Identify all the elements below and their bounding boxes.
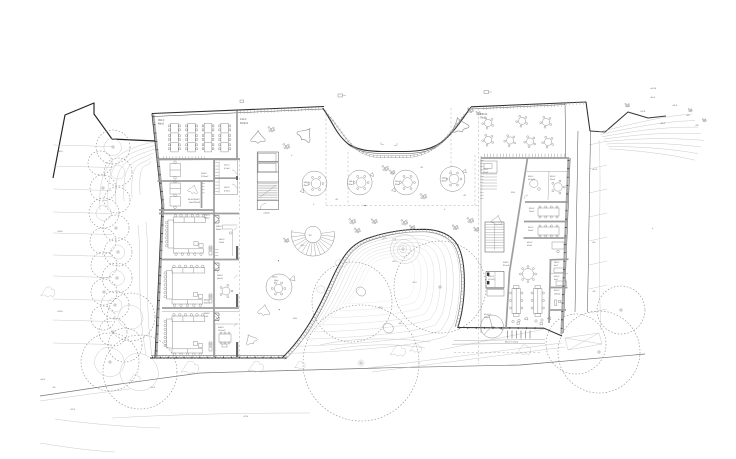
svg-text:48m2: 48m2 xyxy=(158,123,165,126)
svg-text:+29.5: +29.5 xyxy=(70,409,76,411)
svg-text:(16m2): (16m2) xyxy=(554,294,561,296)
svg-text:45m2: 45m2 xyxy=(527,245,533,247)
svg-text:144-C: 144-C xyxy=(395,181,401,183)
svg-text:+38.9: +38.9 xyxy=(660,123,666,125)
svg-text:16m2: 16m2 xyxy=(529,211,535,213)
svg-text:45m2: 45m2 xyxy=(395,184,401,186)
svg-text:50%: 50% xyxy=(511,192,515,194)
svg-text:45m2: 45m2 xyxy=(304,185,310,187)
svg-text:+34.5: +34.5 xyxy=(57,151,63,153)
svg-text:+31.0: +31.0 xyxy=(412,282,417,284)
svg-text:45m2: 45m2 xyxy=(550,179,556,181)
svg-text:(6m): (6m) xyxy=(274,280,279,282)
svg-text:+30.5: +30.5 xyxy=(378,307,383,309)
svg-text:024-C1: 024-C1 xyxy=(488,276,494,278)
svg-text:064-C: 064-C xyxy=(204,215,210,217)
svg-text:+33.5: +33.5 xyxy=(57,311,63,313)
svg-text:144-C: 144-C xyxy=(240,118,247,121)
svg-text:69m2: 69m2 xyxy=(216,229,222,231)
svg-text:(4.5m2): (4.5m2) xyxy=(488,279,495,281)
svg-text:+35: +35 xyxy=(463,195,466,197)
svg-text:034-C: 034-C xyxy=(554,262,560,264)
svg-text:144-C: 144-C xyxy=(442,178,448,180)
svg-text:+31.5: +31.5 xyxy=(392,261,397,263)
svg-text:(0m2/20m2): (0m2/20m2) xyxy=(189,202,201,204)
svg-text:(6m2): (6m2) xyxy=(217,278,223,280)
svg-text:6.5m2: 6.5m2 xyxy=(224,168,231,170)
svg-text:+29.0: +29.0 xyxy=(243,416,249,418)
svg-text:23.5m2: 23.5m2 xyxy=(201,176,209,178)
svg-text:60m2: 60m2 xyxy=(204,303,210,305)
svg-text:+35: +35 xyxy=(420,167,423,169)
svg-text:144-C: 144-C xyxy=(349,181,355,183)
svg-text:04-023(04C): 04-023(04C) xyxy=(188,199,200,201)
svg-text:16m2: 16m2 xyxy=(528,230,534,232)
svg-text:+30.5: +30.5 xyxy=(40,379,46,381)
svg-text:064-C: 064-C xyxy=(204,300,210,302)
svg-text:044-C: 044-C xyxy=(201,173,207,175)
svg-text:034-C: 034-C xyxy=(529,208,535,210)
svg-text:+04-05: +04-05 xyxy=(263,213,270,215)
svg-text:045-C1: 045-C1 xyxy=(480,114,488,116)
svg-text:90 m2: 90 m2 xyxy=(503,265,510,267)
svg-text:45m2: 45m2 xyxy=(349,184,355,186)
svg-text:044-C #i mknp: 044-C #i mknp xyxy=(505,342,519,344)
svg-text:034-C: 034-C xyxy=(528,176,534,178)
svg-text:+40.0: +40.0 xyxy=(650,97,656,99)
svg-text:064-C: 064-C xyxy=(219,239,225,241)
svg-text:034-C: 034-C xyxy=(550,176,556,178)
svg-text:+34.0: +34.0 xyxy=(57,231,63,233)
svg-text:45m2: 45m2 xyxy=(442,181,448,183)
svg-text:+35: +35 xyxy=(335,199,338,201)
svg-text:044-C: 044-C xyxy=(218,327,224,329)
svg-text:48.5m2: 48.5m2 xyxy=(240,122,249,125)
svg-text:+40.10: +40.10 xyxy=(650,88,657,90)
svg-text:034-C: 034-C xyxy=(528,227,534,229)
svg-text:6.5m2: 6.5m2 xyxy=(224,191,231,193)
svg-text:65m2: 65m2 xyxy=(204,218,210,220)
svg-text:+30.2: +30.2 xyxy=(398,323,403,325)
svg-text:20m2: 20m2 xyxy=(219,242,225,244)
svg-text:044-C: 044-C xyxy=(217,275,223,277)
svg-text:16.0m2: 16.0m2 xyxy=(218,330,226,332)
svg-text:034-C: 034-C xyxy=(554,290,560,292)
svg-text:034-C: 034-C xyxy=(503,262,509,264)
svg-text:(4.5m2): (4.5m2) xyxy=(528,179,535,181)
svg-text:034-C: 034-C xyxy=(554,276,560,278)
svg-text:+35.5: +35.5 xyxy=(300,245,305,247)
svg-text:144-C: 144-C xyxy=(304,182,310,184)
svg-text:45m2: 45m2 xyxy=(483,172,489,174)
svg-text:064-C: 064-C xyxy=(204,313,210,315)
svg-text:+39.6: +39.6 xyxy=(672,105,678,107)
svg-text:040-C: 040-C xyxy=(216,226,222,228)
svg-text:148-C: 148-C xyxy=(272,277,278,279)
svg-text:144-C: 144-C xyxy=(224,165,230,167)
svg-text:+39.8: +39.8 xyxy=(640,111,646,113)
svg-text:144-C: 144-C xyxy=(224,187,230,189)
svg-text:+40.5: +40.5 xyxy=(592,169,598,171)
svg-text:50%: 50% xyxy=(293,318,297,320)
svg-text:134-C: 134-C xyxy=(483,169,489,171)
svg-text:034-C: 034-C xyxy=(527,242,533,244)
